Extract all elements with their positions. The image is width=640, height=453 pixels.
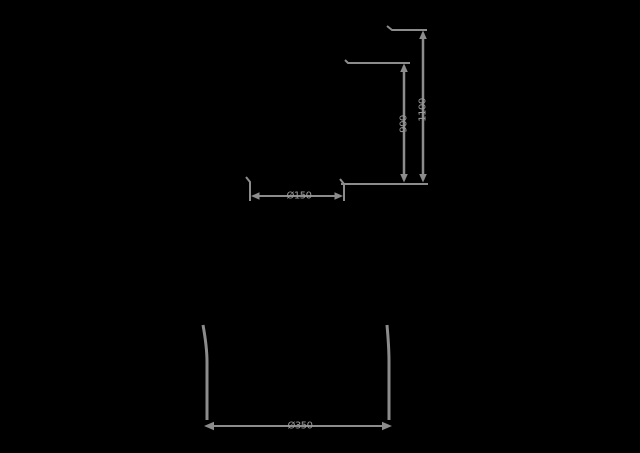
top-diameter-dimension: Ø150 bbox=[246, 177, 344, 202]
arrow-right-icon bbox=[382, 422, 392, 430]
arrow-down-icon bbox=[400, 174, 408, 183]
dimension-diagram: 1100 900 bbox=[0, 0, 640, 453]
diagram-canvas: 1100 900 bbox=[0, 0, 640, 453]
top-diameter-left-extension bbox=[246, 177, 250, 201]
arrow-left-icon bbox=[251, 192, 260, 199]
partial-height-dimension: 900 bbox=[345, 60, 410, 183]
arrow-up-icon bbox=[400, 64, 408, 73]
base-diameter-value: Ø350 bbox=[288, 420, 313, 432]
base-outline-right bbox=[387, 325, 389, 420]
arrow-down-icon bbox=[419, 174, 427, 183]
total-height-top-extension-line bbox=[387, 26, 427, 30]
arrow-up-icon bbox=[419, 31, 427, 40]
base-outline-left bbox=[203, 325, 207, 420]
arrow-left-icon bbox=[204, 422, 214, 430]
total-height-value: 1100 bbox=[418, 98, 429, 122]
total-height-dimension: 1100 bbox=[387, 26, 429, 183]
top-diameter-value: Ø150 bbox=[287, 190, 312, 202]
partial-height-top-extension-line bbox=[345, 60, 410, 63]
top-diameter-right-extension bbox=[340, 179, 344, 201]
partial-height-value: 900 bbox=[399, 115, 410, 133]
base-outline bbox=[203, 325, 389, 420]
arrow-right-icon bbox=[335, 192, 344, 199]
base-diameter-dimension: Ø350 bbox=[204, 420, 392, 432]
